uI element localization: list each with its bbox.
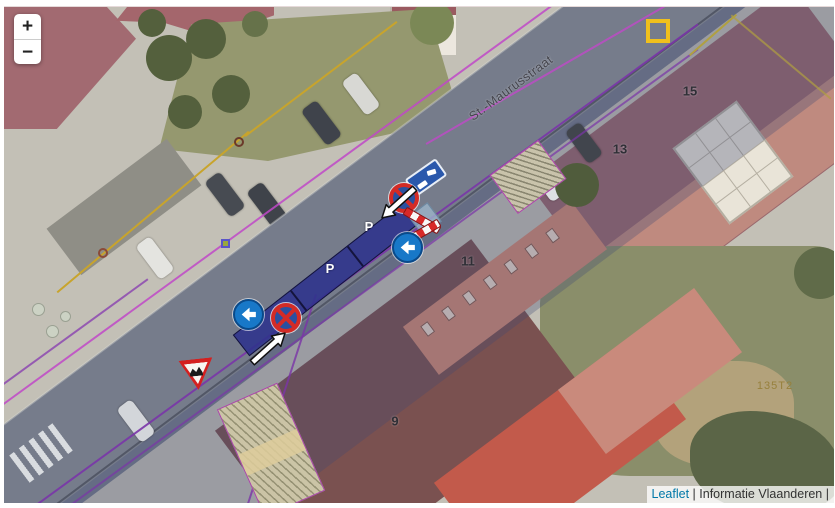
bin: [46, 325, 59, 338]
house-number: 9: [391, 414, 398, 429]
tree: [186, 19, 226, 59]
tree: [242, 11, 268, 37]
house-number: 11: [461, 254, 475, 269]
house-number: 15: [683, 84, 697, 99]
attribution-sep: |: [822, 487, 829, 501]
tree: [168, 95, 202, 129]
tan-band: [238, 429, 306, 476]
shed-roof: [47, 139, 202, 275]
vertex-circle-marker: [98, 248, 108, 258]
parking-p-label: P: [322, 261, 338, 277]
zoom-in-button[interactable]: +: [14, 14, 41, 39]
map-viewport[interactable]: P P St.-Maurusstraat 15 13 11 9: [4, 6, 834, 503]
parcel-code-label: 135T2: [757, 380, 793, 392]
vertex-circle-marker: [234, 137, 244, 147]
attribution-source: Informatie Vlaanderen: [699, 487, 822, 501]
car: [135, 236, 175, 280]
vertex-square-marker[interactable]: [221, 239, 230, 248]
tree: [146, 35, 192, 81]
selection-highlight-square[interactable]: [646, 19, 670, 43]
tree-over-road: [555, 163, 599, 207]
mandatory-left-sign-icon[interactable]: [233, 299, 264, 330]
attribution-sep: |: [689, 487, 699, 501]
bin: [60, 311, 71, 322]
leaflet-link[interactable]: Leaflet: [652, 487, 690, 501]
segment-divider: [347, 246, 364, 267]
parking-p-label: P: [361, 219, 377, 235]
house-number: 13: [613, 142, 627, 157]
zoom-out-button[interactable]: −: [14, 39, 41, 64]
tow-plate-glyph: [427, 169, 437, 176]
bin: [32, 303, 45, 316]
tree: [212, 75, 250, 113]
tree: [138, 9, 166, 37]
attribution-bar: Leaflet | Informatie Vlaanderen |: [647, 486, 834, 503]
tow-plate-glyph: [417, 180, 428, 190]
zoom-control: + −: [14, 14, 41, 64]
mandatory-left-sign-icon[interactable]: [392, 232, 423, 263]
car: [204, 171, 246, 218]
